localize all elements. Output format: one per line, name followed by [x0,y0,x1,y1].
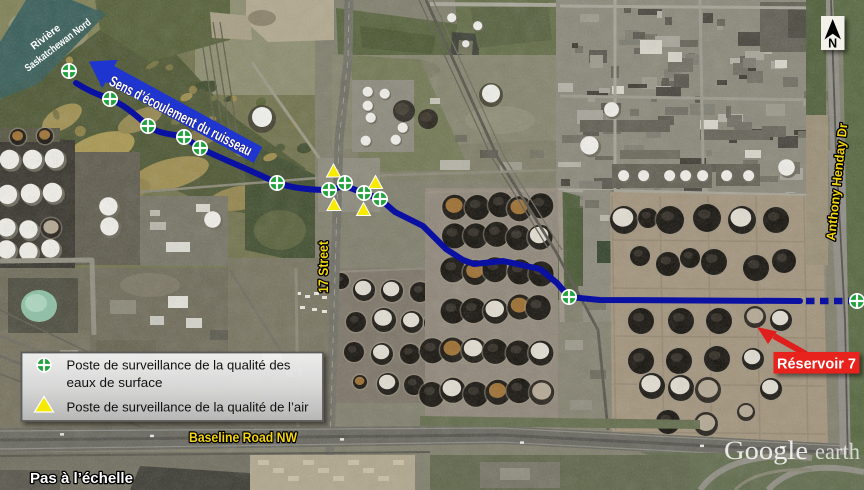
svg-text:Baseline Road NW: Baseline Road NW [189,430,297,445]
svg-text:Poste de surveillance de la qu: Poste de surveillance de la qualité de l… [67,400,310,415]
svg-text:Google: Google [724,436,808,465]
svg-text:earth: earth [815,439,860,464]
svg-text:Réservoir 7: Réservoir 7 [777,357,856,373]
svg-text:Poste de surveillance de la qu: Poste de surveillance de la qualité des [67,358,291,373]
svg-text:N: N [828,37,837,51]
svg-text:Pas à l’échelle: Pas à l’échelle [30,470,133,487]
svg-text:eaux de surface: eaux de surface [67,375,163,390]
svg-text:17 Street: 17 Street [316,241,331,293]
